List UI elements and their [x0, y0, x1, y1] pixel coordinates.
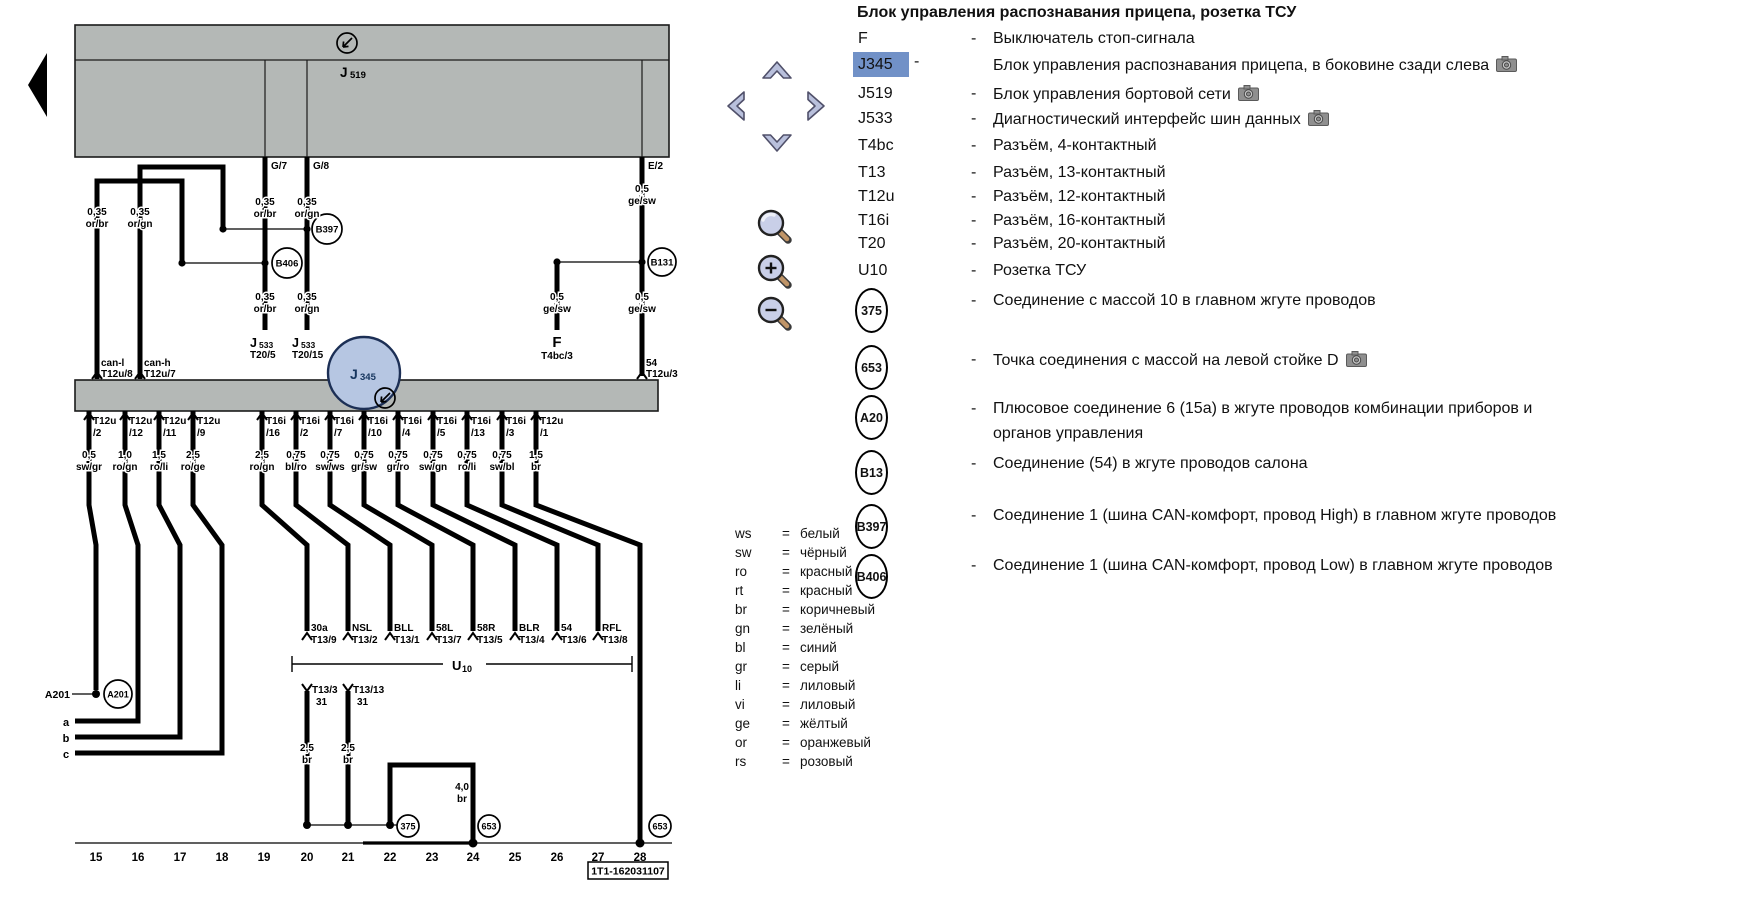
legend-code: T13: [858, 164, 886, 182]
junction-b406: B406: [272, 248, 302, 278]
color-label: or/br: [86, 219, 109, 230]
color-label: ge/sw: [628, 304, 656, 315]
svg-text:B397: B397: [316, 225, 339, 236]
gauge-label: 0,35: [87, 207, 107, 218]
legend-desc: Соединение 1 (шина CAN-комфорт, провод L…: [993, 557, 1553, 575]
legend-connection-circle: B13: [855, 450, 888, 495]
ground-drops: T13/3 31 T13/13 31 2,5 br 2,5 br: [300, 684, 397, 829]
svg-text:31: 31: [316, 697, 328, 708]
svg-text:17: 17: [174, 852, 187, 864]
svg-text:0,75: 0,75: [320, 450, 340, 461]
j519-box: J 519: [75, 25, 669, 157]
color-name: лиловый: [800, 697, 855, 712]
gauge-label: 4,0: [455, 782, 469, 793]
svg-text:0,75: 0,75: [457, 450, 477, 461]
svg-text:/2: /2: [93, 428, 102, 439]
legend-code: T20: [858, 235, 886, 253]
legend-ground-circle: 375: [855, 288, 888, 333]
svg-text:T13/7: T13/7: [436, 635, 462, 646]
legend-desc: Точка соединения с массой на левой стойк…: [993, 351, 1367, 370]
legend-code: T16i: [858, 212, 889, 230]
color-name: серый: [800, 659, 839, 674]
svg-text:ro/li: ro/li: [150, 462, 169, 473]
color-label: or/gn: [128, 219, 153, 230]
svg-text:/11: /11: [163, 428, 177, 439]
svg-text:20: 20: [301, 852, 314, 864]
pan-up-chevron[interactable]: [763, 62, 791, 78]
color-code: gn: [735, 621, 750, 636]
ground-653-1: 653: [478, 815, 500, 837]
svg-text:B131: B131: [651, 258, 674, 269]
svg-text:BLR: BLR: [519, 623, 540, 634]
gauge-label: 0,5: [550, 292, 564, 303]
svg-text:T12u: T12u: [197, 416, 220, 427]
svg-text:0,75: 0,75: [286, 450, 306, 461]
gauge-label: 0,35: [297, 197, 317, 208]
svg-text:1,5: 1,5: [152, 450, 166, 461]
svg-text:31: 31: [357, 697, 369, 708]
svg-text:br: br: [343, 755, 353, 766]
svg-text:ro/gn: ro/gn: [113, 462, 138, 473]
label-t12u3: T12u/3: [646, 369, 678, 380]
svg-text:BLL: BLL: [394, 623, 413, 634]
legend-code: J519: [858, 85, 893, 103]
svg-text:T16i: T16i: [334, 416, 354, 427]
svg-text:2,5: 2,5: [300, 743, 314, 754]
svg-text:T16i: T16i: [300, 416, 320, 427]
color-code: gr: [735, 659, 747, 674]
j345-selected-unit[interactable]: J 345: [328, 337, 400, 409]
color-name: красный: [800, 564, 852, 579]
camera-icon[interactable]: [1496, 56, 1517, 72]
svg-text:/10: /10: [368, 428, 382, 439]
svg-text:T13/2: T13/2: [352, 635, 378, 646]
svg-text:345: 345: [360, 372, 377, 383]
svg-text:533: 533: [301, 340, 315, 350]
svg-text:T13/4: T13/4: [519, 635, 545, 646]
gauge-label: 0,5: [635, 184, 649, 195]
legend-desc-line2: органов управления: [993, 425, 1143, 443]
legend-desc: Соединение (54) в жгуте проводов салона: [993, 455, 1308, 473]
svg-text:T13/8: T13/8: [602, 635, 628, 646]
legend-desc: Блок управления бортовой сети: [993, 85, 1259, 104]
svg-text:sw/gr: sw/gr: [76, 462, 102, 473]
svg-text:T16i: T16i: [368, 416, 388, 427]
svg-text:2,5: 2,5: [186, 450, 200, 461]
color-name: розовый: [800, 754, 853, 769]
svg-text:T12u: T12u: [93, 416, 116, 427]
svg-text:1,0: 1,0: [118, 450, 132, 461]
color-code: or: [735, 735, 747, 750]
legend-desc: Соединение с массой 10 в главном жгуте п…: [993, 292, 1376, 310]
svg-text:gr/ro: gr/ro: [387, 462, 410, 473]
legend-desc: Блок управления распознавания прицепа, в…: [993, 56, 1517, 75]
t13-target-labels: 30aT13/9 NSLT13/2 BLLT13/1 58LT13/7 58RT…: [311, 623, 628, 646]
svg-text:0,75: 0,75: [354, 450, 374, 461]
color-name: белый: [800, 526, 840, 541]
svg-text:T12u: T12u: [129, 416, 152, 427]
svg-text:2,5: 2,5: [341, 743, 355, 754]
svg-text:T13/13: T13/13: [353, 685, 385, 696]
color-code: sw: [735, 545, 752, 560]
viewer-controls: [690, 25, 840, 345]
svg-text:br: br: [531, 462, 541, 473]
svg-text:375: 375: [400, 822, 415, 832]
svg-text:18: 18: [216, 852, 229, 864]
color-code: bl: [735, 640, 746, 655]
legend-desc: Розетка ТСУ: [993, 262, 1086, 280]
target-j533-2-pin: T20/15: [292, 350, 324, 361]
gauge-label: 0,35: [130, 207, 150, 218]
pin-label-g7: G/7: [271, 161, 288, 172]
svg-text:653: 653: [652, 822, 667, 832]
legend-code: F: [858, 30, 868, 48]
svg-text:30a: 30a: [311, 623, 328, 634]
svg-text:ro/gn: ro/gn: [250, 462, 275, 473]
svg-text:0,5: 0,5: [82, 450, 96, 461]
legend-connection-circle: A20: [855, 395, 888, 440]
target-j533-2: J: [292, 336, 299, 350]
color-name: чёрный: [800, 545, 847, 560]
label-a: a: [63, 717, 70, 729]
legend-desc: Соединение 1 (шина CAN-комфорт, провод H…: [993, 507, 1556, 525]
svg-text:T16i: T16i: [506, 416, 526, 427]
camera-icon[interactable]: [1308, 110, 1329, 126]
svg-text:A201: A201: [45, 689, 70, 701]
svg-text:T16i: T16i: [437, 416, 457, 427]
legend-desc: Выключатель стоп-сигнала: [993, 30, 1195, 48]
legend-desc: Диагностический интерфейс шин данных: [993, 110, 1329, 129]
svg-text:T16i: T16i: [402, 416, 422, 427]
magnifier-icon[interactable]: [759, 211, 788, 240]
svg-text:1,5: 1,5: [529, 450, 543, 461]
pin-label-e2: E/2: [648, 161, 663, 172]
svg-text:653: 653: [481, 822, 496, 832]
color-code: br: [735, 602, 747, 617]
svg-text:25: 25: [509, 852, 522, 864]
svg-text:58L: 58L: [436, 623, 453, 634]
svg-text:58R: 58R: [477, 623, 496, 634]
color-label: br: [457, 794, 467, 805]
svg-text:533: 533: [259, 340, 273, 350]
color-name: зелёный: [800, 621, 853, 636]
legend-code: U10: [858, 262, 887, 280]
color-name: синий: [800, 640, 837, 655]
svg-text:23: 23: [426, 852, 439, 864]
junction-b131: B131: [648, 248, 676, 276]
ground-375: 375: [397, 815, 419, 837]
color-label: or/br: [254, 209, 277, 220]
svg-text:22: 22: [384, 852, 397, 864]
svg-text:/4: /4: [402, 428, 411, 439]
j519-label-num: 519: [350, 70, 366, 81]
svg-text:NSL: NSL: [352, 623, 372, 634]
svg-text:/16: /16: [266, 428, 280, 439]
svg-text:T13/9: T13/9: [311, 635, 337, 646]
legend-title: Блок управления распознавания прицепа, р…: [857, 4, 1296, 22]
label-54: 54: [646, 358, 658, 369]
svg-text:/7: /7: [334, 428, 343, 439]
color-name: лиловый: [800, 678, 855, 693]
legend-code: J345: [858, 56, 893, 74]
legend-desc: Разъём, 16-контактный: [993, 212, 1166, 230]
legend-desc: Плюсовое соединение 6 (15а) в жгуте пров…: [993, 400, 1532, 418]
svg-text:ro/ge: ro/ge: [181, 462, 206, 473]
svg-text:sw/gn: sw/gn: [419, 462, 447, 473]
gauge-label: 0,35: [297, 292, 317, 303]
pan-down-chevron[interactable]: [763, 135, 791, 151]
svg-text:1T1-162031107: 1T1-162031107: [591, 866, 665, 878]
svg-text:T16i: T16i: [266, 416, 286, 427]
gauge-label: 0,5: [635, 292, 649, 303]
legend-desc: Разъём, 13-контактный: [993, 164, 1166, 182]
svg-text:21: 21: [342, 852, 355, 864]
svg-text:sw/bl: sw/bl: [489, 462, 514, 473]
color-name: жёлтый: [800, 716, 848, 731]
color-code: ro: [735, 564, 747, 579]
svg-text:/3: /3: [506, 428, 515, 439]
ground-653-2: 653: [649, 815, 671, 837]
target-f-pin: T4bc/3: [541, 351, 573, 362]
svg-text:/12: /12: [129, 428, 143, 439]
sheet-id-box: 1T1-162031107: [588, 862, 668, 879]
legend-code: T4bc: [858, 137, 894, 155]
target-f: F: [552, 334, 561, 351]
svg-text:/13: /13: [471, 428, 485, 439]
svg-text:RFL: RFL: [602, 623, 621, 634]
svg-text:ro/li: ro/li: [458, 462, 477, 473]
legend-connection-circle: B397: [855, 504, 888, 549]
svg-text:2,5: 2,5: [255, 450, 269, 461]
svg-text:J: J: [350, 366, 358, 382]
color-code: vi: [735, 697, 745, 712]
svg-text:/9: /9: [197, 428, 206, 439]
color-label: ge/sw: [543, 304, 571, 315]
color-code: li: [735, 678, 741, 693]
color-code: ws: [735, 526, 752, 541]
color-name: коричневый: [800, 602, 875, 617]
back-arrow[interactable]: [28, 53, 47, 117]
legend-desc: Разъём, 20-контактный: [993, 235, 1166, 253]
legend-connection-circle: B406: [855, 554, 888, 599]
gauge-label: 0,35: [255, 197, 275, 208]
pan-left-chevron[interactable]: [728, 92, 744, 120]
legend-ground-circle: 653: [855, 345, 888, 390]
svg-text:T13/3: T13/3: [312, 685, 338, 696]
label-c: c: [63, 749, 69, 761]
svg-text:15: 15: [90, 852, 103, 864]
camera-icon[interactable]: [1238, 85, 1259, 101]
camera-icon[interactable]: [1346, 351, 1367, 367]
svg-text:gr/sw: gr/sw: [351, 462, 377, 473]
track-numbers: 15 16 17 18 19 20 21 22 23 24 25 26 27 2…: [90, 852, 647, 864]
legend-code: J533: [858, 110, 893, 128]
svg-text:T12u: T12u: [540, 416, 563, 427]
svg-text:T13/1: T13/1: [394, 635, 420, 646]
svg-text:24: 24: [467, 852, 480, 864]
target-j533-1-pin: T20/5: [250, 350, 276, 361]
svg-text:T16i: T16i: [471, 416, 491, 427]
label-can-l-pin: T12u/8: [101, 369, 133, 380]
color-name: красный: [800, 583, 852, 598]
svg-text:26: 26: [551, 852, 564, 864]
svg-text:/2: /2: [300, 428, 309, 439]
color-code: ge: [735, 716, 750, 731]
a201-junction: A201 A201: [45, 680, 132, 708]
svg-text:/5: /5: [437, 428, 446, 439]
legend-code: T12u: [858, 188, 894, 206]
svg-text:bl/ro: bl/ro: [285, 462, 307, 473]
color-code: rs: [735, 754, 746, 769]
color-code: rt: [735, 583, 743, 598]
svg-text:0,75: 0,75: [423, 450, 443, 461]
svg-text:10: 10: [462, 664, 472, 674]
pin-label-g8: G/8: [313, 161, 330, 172]
svg-text:sw/ws: sw/ws: [315, 462, 345, 473]
zoom-in-icon[interactable]: [759, 256, 788, 285]
color-label: or/br: [254, 304, 277, 315]
svg-text:T12u: T12u: [163, 416, 186, 427]
label-can-h-pin: T12u/7: [144, 369, 176, 380]
svg-text:/1: /1: [540, 428, 549, 439]
svg-text:54: 54: [561, 623, 573, 634]
wiring-diagram-viewer: J 519 G/7 G/8 E/2 B397 B406 B131 0,35 or…: [0, 0, 1752, 905]
svg-text:19: 19: [258, 852, 271, 864]
svg-text:0,75: 0,75: [492, 450, 512, 461]
svg-text:B406: B406: [276, 259, 299, 270]
color-label: or/gn: [295, 304, 320, 315]
label-can-l: can-l: [101, 358, 125, 369]
color-name: оранжевый: [800, 735, 871, 750]
svg-text:0,75: 0,75: [388, 450, 408, 461]
legend-desc: Разъём, 12-контактный: [993, 188, 1166, 206]
u10-label: U: [452, 658, 461, 673]
svg-text:A201: A201: [107, 690, 129, 700]
wire-gauge-labels: 0,5sw/gr 1,0ro/gn 1,5ro/li 2,5ro/ge 2,5r…: [76, 450, 543, 473]
svg-text:T13/5: T13/5: [477, 635, 503, 646]
zoom-out-icon[interactable]: [759, 298, 788, 327]
wiring-diagram-canvas: J 519 G/7 G/8 E/2 B397 B406 B131 0,35 or…: [0, 0, 700, 905]
target-j533-1: J: [250, 336, 257, 350]
color-label: ge/sw: [628, 196, 656, 207]
label-can-h: can-h: [144, 358, 171, 369]
label-b: b: [63, 733, 70, 745]
svg-text:16: 16: [132, 852, 145, 864]
svg-text:T13/6: T13/6: [561, 635, 587, 646]
j519-label: J: [340, 65, 348, 80]
gauge-label: 0,35: [255, 292, 275, 303]
color-label: or/gn: [295, 209, 320, 220]
pan-right-chevron[interactable]: [808, 92, 824, 120]
svg-text:br: br: [302, 755, 312, 766]
legend-desc: Разъём, 4-контактный: [993, 137, 1157, 155]
